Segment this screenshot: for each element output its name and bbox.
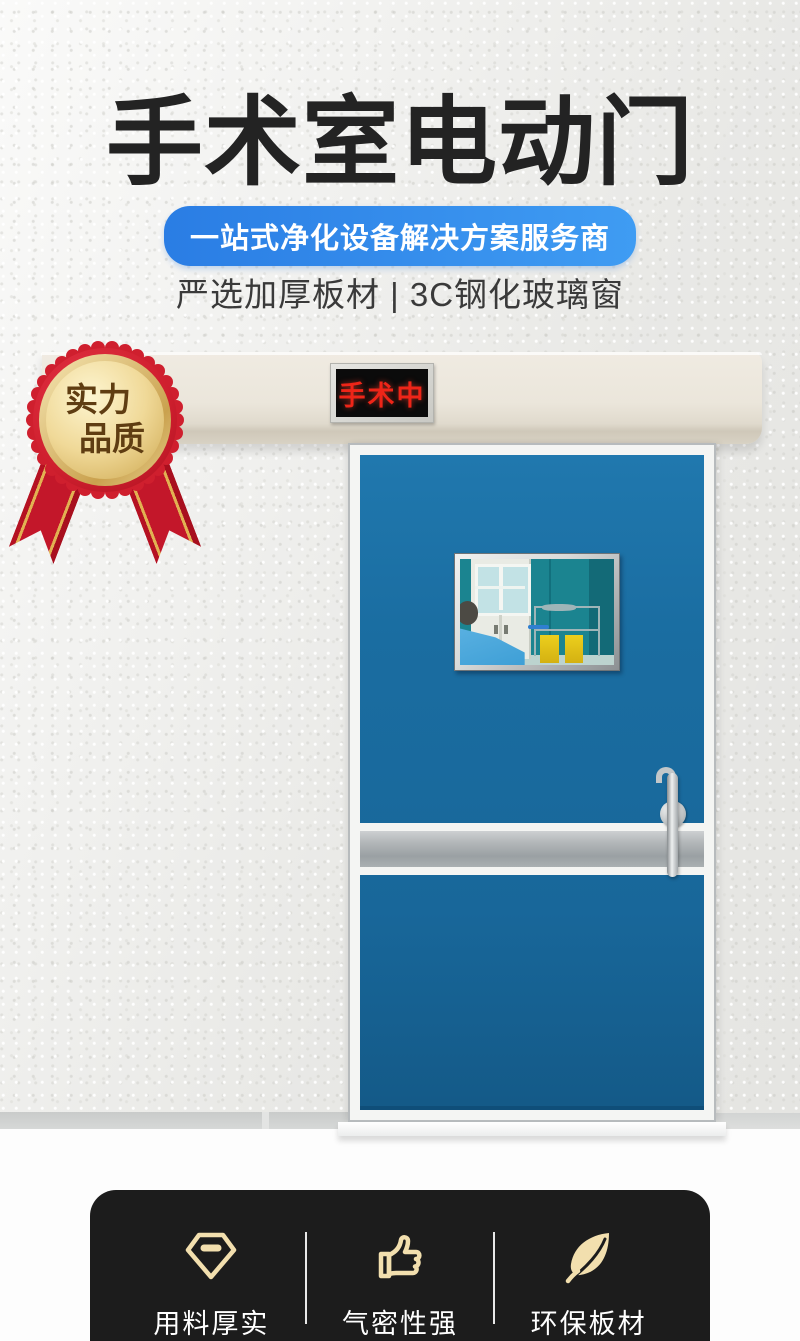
- door-frame: [348, 443, 716, 1122]
- feature-label: 用料厚实: [153, 1302, 269, 1341]
- stainless-kick-band: [360, 831, 704, 867]
- or-cart-tray: [542, 604, 576, 611]
- skirting-seam: [262, 1112, 269, 1129]
- door-handle[interactable]: [667, 773, 678, 877]
- kick-band-edge: [360, 867, 704, 875]
- diamond-icon: [179, 1224, 243, 1288]
- feature-material: 用料厚实: [118, 1224, 305, 1341]
- tagline-pill: 一站式净化设备解决方案服务商: [164, 206, 636, 266]
- leaf-icon: [557, 1224, 621, 1288]
- operating-room-view: [460, 559, 614, 665]
- poster: 手术室电动门 一站式净化设备解决方案服务商 严选加厚板材 | 3C钢化玻璃窗 手…: [0, 0, 800, 1341]
- feature-label: 气密性强: [342, 1302, 458, 1341]
- badge-gold-face: 实力 品质: [46, 361, 164, 479]
- badge-rosette: 实力 品质: [25, 340, 185, 500]
- skirting-right: [714, 1113, 800, 1129]
- door-window: [454, 553, 620, 671]
- feature-eco: 环保板材: [495, 1224, 682, 1341]
- status-sign-screen: 手术中: [336, 369, 428, 417]
- or-cabinet-glass: [475, 564, 530, 616]
- tagline-text: 一站式净化设备解决方案服务商: [190, 223, 610, 255]
- or-blue-item: [528, 625, 550, 629]
- feature-label: 环保板材: [531, 1302, 647, 1341]
- kick-band-edge: [360, 823, 704, 831]
- door-threshold: [338, 1122, 726, 1136]
- thumbs-up-icon: [368, 1224, 432, 1288]
- or-yellow-bin: [540, 635, 558, 663]
- status-sign-text: 手术中: [339, 374, 426, 413]
- subtitle: 严选加厚板材 | 3C钢化玻璃窗: [0, 268, 800, 316]
- or-cabinet-handle: [504, 625, 508, 634]
- quality-badge: 实力 品质: [25, 340, 185, 590]
- page-title: 手术室电动门: [0, 92, 800, 194]
- feature-panel: 用料厚实 气密性强 环保板材: [90, 1190, 710, 1341]
- or-cabinet-handle: [494, 625, 498, 634]
- or-yellow-bin: [565, 635, 583, 663]
- badge-text: 实力 品质: [72, 381, 138, 459]
- feature-airtight: 气密性强: [307, 1224, 494, 1341]
- or-cabinet-shelf: [475, 586, 524, 589]
- or-cart-shelf: [536, 629, 598, 631]
- skirting-left: [0, 1112, 352, 1129]
- status-sign: 手术中: [330, 363, 434, 423]
- door-panel: [360, 455, 704, 1110]
